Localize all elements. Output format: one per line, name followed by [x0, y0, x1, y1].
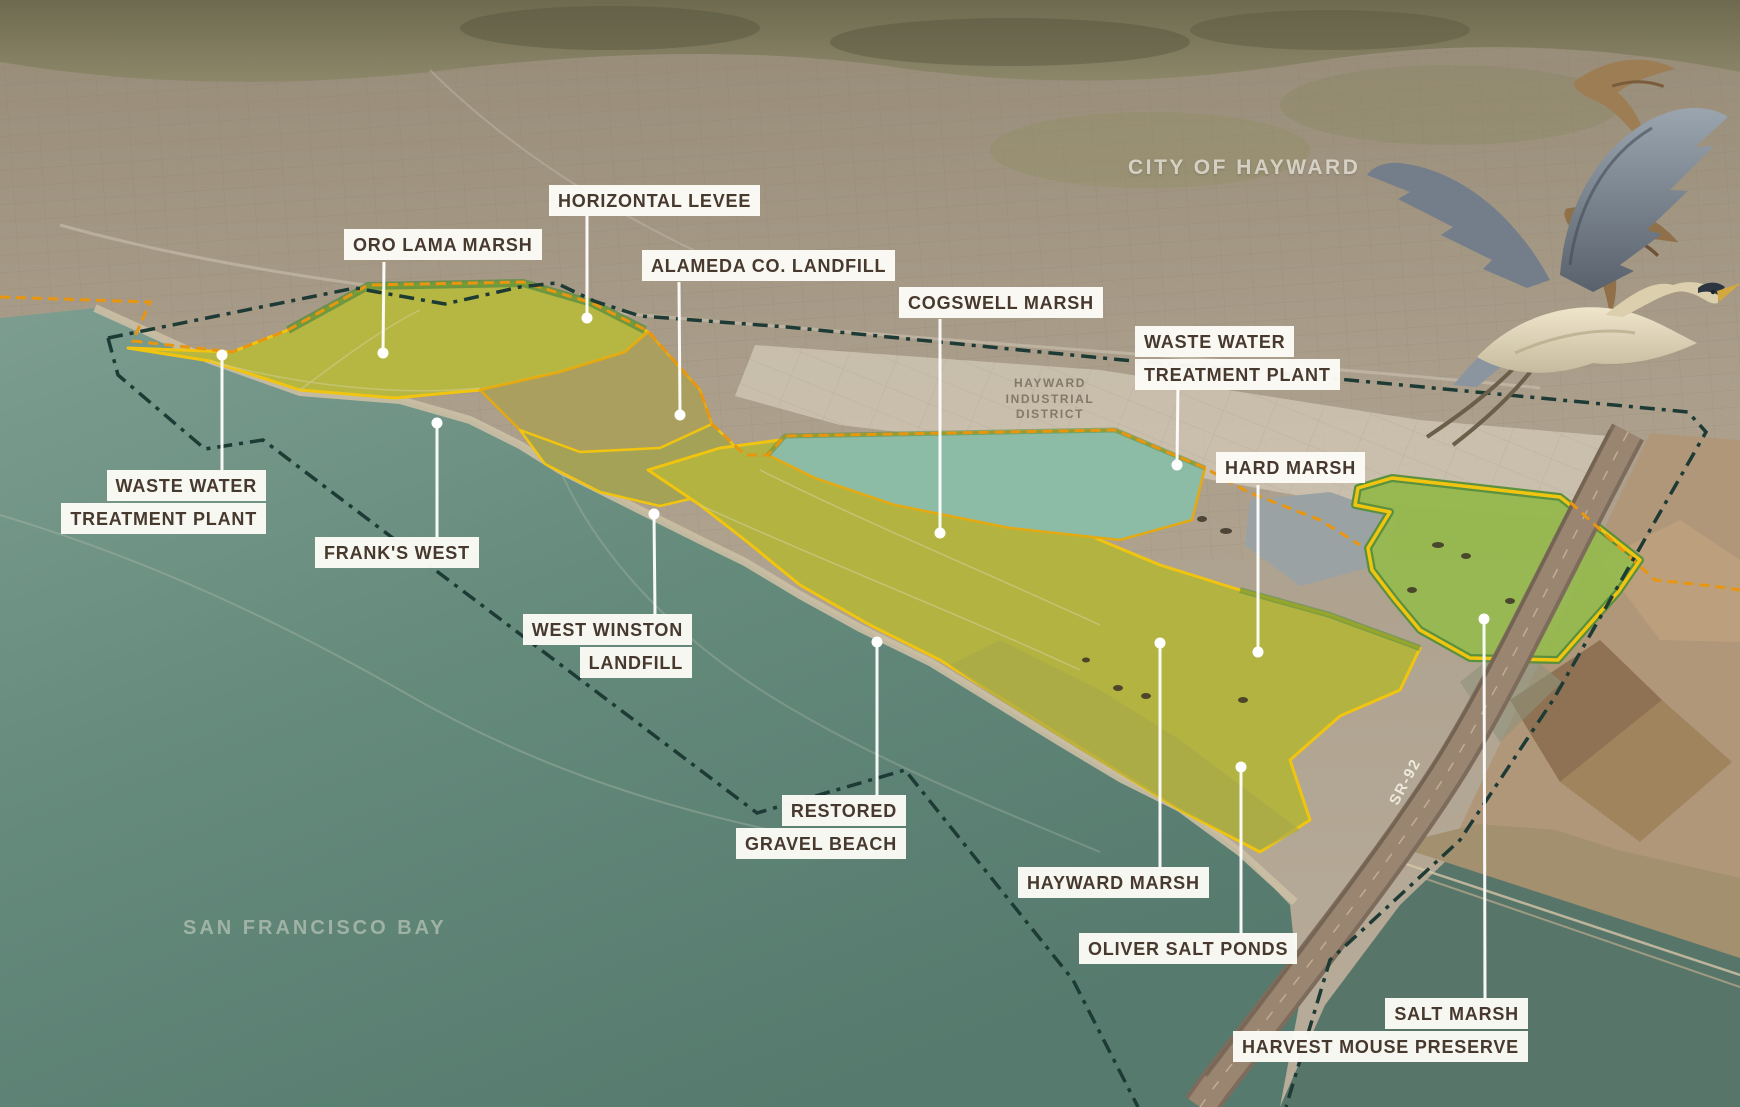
aerial-map-graphic [0, 0, 1740, 1107]
shoreline-plan-map: HORIZONTAL LEVEE ORO LAMA MARSH ALAMEDA … [0, 0, 1740, 1107]
